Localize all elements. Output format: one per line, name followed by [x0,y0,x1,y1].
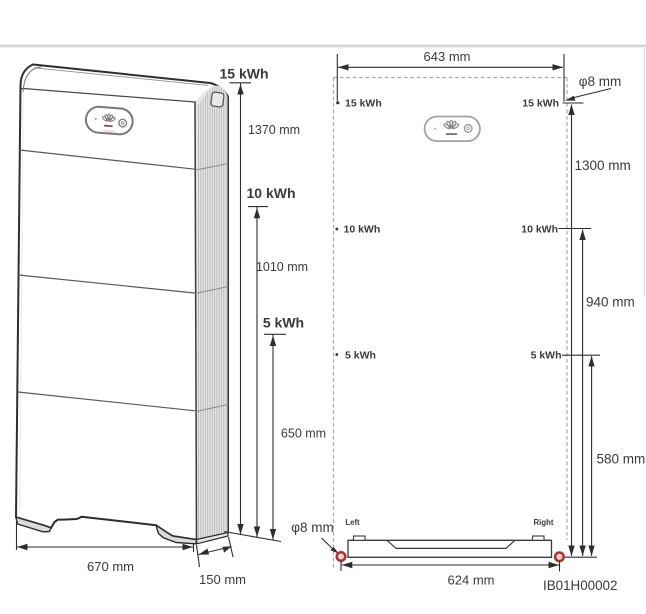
svg-text:15 kWh: 15 kWh [219,65,268,81]
svg-text:φ8 mm: φ8 mm [579,74,622,89]
svg-text:Left: Left [345,518,360,527]
svg-text:IB01H00002: IB01H00002 [543,578,617,593]
svg-text:1370 mm: 1370 mm [248,123,300,137]
svg-text:150 mm: 150 mm [199,572,246,587]
svg-text:Right: Right [534,518,554,527]
svg-text:10 kWh: 10 kWh [521,224,558,236]
svg-text:10 kWh: 10 kWh [344,224,381,236]
svg-text:940 mm: 940 mm [586,295,635,310]
svg-text:10 kWh: 10 kWh [246,185,295,201]
svg-text:15 kWh: 15 kWh [522,98,559,110]
svg-text:5 kWh: 5 kWh [531,350,562,362]
svg-text:650 mm: 650 mm [281,427,326,441]
svg-text:15 kWh: 15 kWh [345,98,382,110]
svg-text:1300 mm: 1300 mm [575,158,631,173]
svg-text:5 kWh: 5 kWh [263,315,304,331]
svg-text:580 mm: 580 mm [597,452,646,467]
svg-text:670 mm: 670 mm [87,559,134,574]
svg-text:624 mm: 624 mm [448,573,495,588]
svg-text:5 kWh: 5 kWh [345,350,376,362]
svg-text:φ8 mm: φ8 mm [291,520,334,535]
svg-text:643 mm: 643 mm [424,49,471,64]
svg-text:1010 mm: 1010 mm [256,260,308,274]
